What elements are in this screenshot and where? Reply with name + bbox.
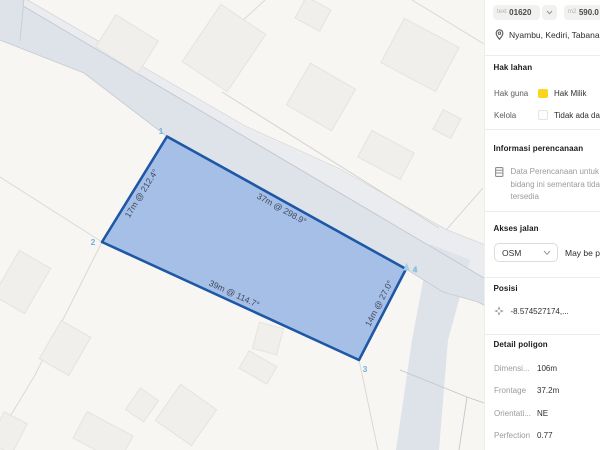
svg-text:2: 2	[91, 237, 96, 247]
svg-text:3: 3	[363, 364, 368, 374]
svg-text:4: 4	[413, 265, 418, 275]
svg-text:1: 1	[159, 126, 164, 136]
